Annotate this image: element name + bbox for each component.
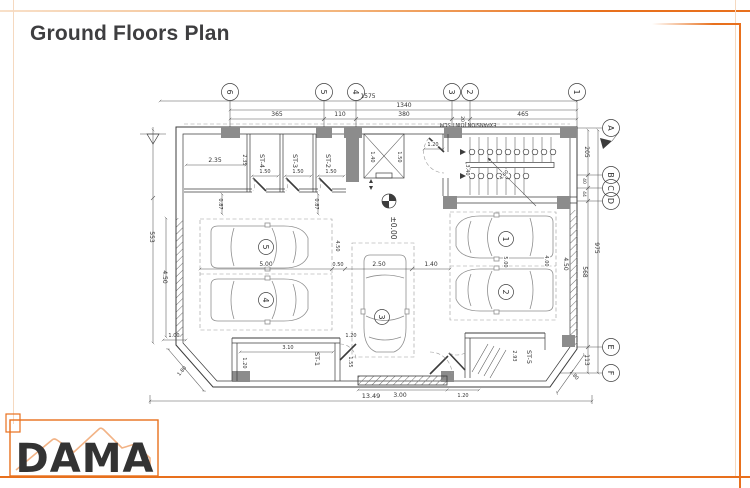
dim-label: 1.40 [369,151,375,162]
dim-label: 4.50 [334,240,340,251]
grid-bubble-1: 1 [569,84,586,128]
expansion-joint-label: EXPANSION JOINT 5CM [440,121,497,127]
dim-label: 1.80 [176,365,188,377]
room-label: ST-1 [313,352,321,366]
dim-label: 40 [581,178,587,184]
room-label: ST-2 [324,154,332,168]
svg-text:6: 6 [225,89,234,94]
dim-label: 5.00 [259,261,273,268]
dim-label: 1.50 [259,169,270,175]
dim-label: 1.00 [168,333,179,339]
dim-label: 1340 [396,102,411,109]
dim-label: 2.93 [511,350,517,361]
dim-label: 1.50 [292,169,303,175]
svg-text:1: 1 [501,236,510,241]
main-staircase: 1.20 [424,134,577,209]
svg-text:5: 5 [319,89,328,94]
dim-label: 975 [593,242,600,254]
stair-room-st5: ST-5 2.93 [449,333,545,378]
room-label: ST-5 [525,350,533,364]
dim-label: 1.50 [325,169,336,175]
svg-text:E: E [606,344,615,349]
svg-text:4: 4 [261,297,270,302]
stair-rooms-top: ST-4 ST-3 ST-2 1.50 1.50 1.50 2.35 0.87 … [184,134,346,214]
grid-bubble-6: 6 [222,84,239,128]
dim-label: 0.87 [217,198,223,209]
dim-label: 465 [517,111,529,118]
logo-text: DAMA [16,436,155,482]
stair-room-st1: ST-1 3.10 1.20 1.55 1.00 1.20 [163,333,357,381]
dim-label: 0.87 [313,198,319,209]
dim-label: 3.10 [282,345,293,351]
svg-text:3: 3 [377,314,386,319]
dim-label: 1.20 [427,142,438,148]
dim-label: 380 [398,111,410,118]
top-dimensions: 1575 1340 365 110 380 465 20 EXPANSION J… [160,93,577,127]
grid-bubble-4: 4 [348,84,365,128]
left-wall-hatch [177,218,184,337]
parking-area: 5 4 3 1 2 5.00 0.50 2. [200,212,556,357]
dim-label: 4.00 [543,255,549,266]
entry-arrow-icon [600,138,612,149]
dim-label: 5.00 [502,256,508,267]
dim-label: 1575 [360,93,375,100]
right-wall-hatch [571,210,578,347]
dim-label: 4.50 [562,257,569,271]
level-label: ±0.00 [389,217,398,240]
room-label: ST-4 [258,154,266,168]
svg-text:D: D [606,198,615,204]
svg-text:4: 4 [351,89,360,94]
dim-label: 1.20 [241,357,247,368]
dim-label: 13.49 [362,392,381,400]
dim-label: 205 [583,146,590,158]
dim-label: 0.50 [332,262,343,268]
dim-label: 1.55 [347,356,353,367]
dim-label: 110 [334,111,346,118]
svg-text:F: F [606,371,615,376]
dama-logo: DAMA [4,412,174,486]
dim-label: 3.40 [464,164,470,175]
logo-corner-square [6,414,20,432]
grid-bubble-5: 5 [316,84,333,128]
dim-label: 44 [581,191,587,197]
dim-label: 365 [271,111,283,118]
dim-label: 568 [581,266,588,278]
dim-label: 553 [148,231,155,243]
svg-text:3: 3 [447,89,456,94]
dim-label: 1.20 [457,393,468,399]
svg-text:1: 1 [572,89,581,94]
dim-label: 1.20 [345,333,356,339]
dim-label: 1.40 [424,261,438,268]
dim-label: 2.50 [372,261,386,268]
dim-label: 1.50 [396,151,402,162]
dim-label: 2.35 [241,154,247,165]
dim-label: 2.35 [208,157,222,164]
svg-text:2: 2 [501,289,510,294]
room-label: ST-3 [291,154,299,168]
svg-text:2: 2 [465,89,474,94]
svg-text:C: C [606,185,615,191]
elevator: 1.40 1.50 [364,134,404,190]
dim-label: 3.00 [393,392,407,399]
grid-bubble-3: 3 [444,84,461,128]
dim-label: 113 [583,354,590,366]
level-marker: ±0.00 [382,194,398,240]
svg-text:B: B [606,172,615,178]
dim-label: 4.50 [161,270,168,284]
svg-text:5: 5 [261,244,270,249]
svg-text:A: A [606,125,615,131]
drawing-sheet: Ground Floors Plan 1575 [0,0,750,488]
